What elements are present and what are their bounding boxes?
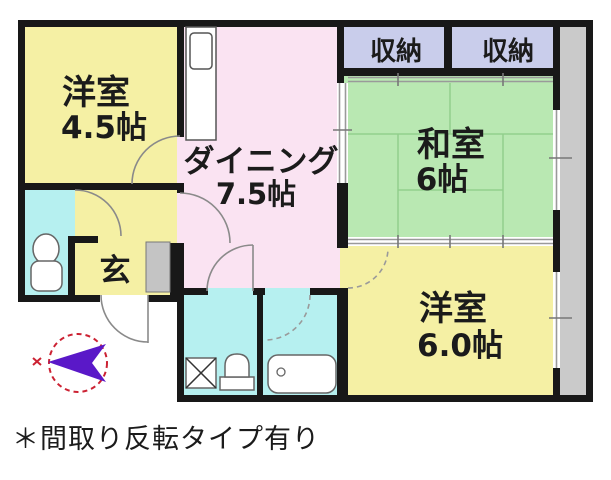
north-arrow-icon [33,334,107,392]
balcony-strip [556,24,590,395]
washing-machine-pan-icon [186,358,216,388]
label-storage-left: 収納 [370,36,422,67]
label-western-small-size: 4.5帖 [61,110,147,146]
floor-plan: 洋室 4.5帖 ダイニング 7.5帖 収納 収納 和室 6帖 洋室 6.0帖 玄… [0,0,611,480]
label-dining-name: ダイニング [184,144,339,180]
label-japanese-size: 6帖 [416,162,469,198]
bathtub-icon [268,355,336,393]
shoe-cabinet-icon [146,242,170,292]
label-western-large-size: 6.0帖 [417,328,503,364]
label-japanese-name: 和室 [417,125,485,165]
label-dining-size: 7.5帖 [216,177,296,211]
label-western-small-name: 洋室 [62,73,130,113]
toilet-icon [31,234,62,291]
floor-plan-drawing: 洋室 4.5帖 ダイニング 7.5帖 収納 収納 和室 6帖 洋室 6.0帖 玄… [0,0,611,480]
kitchen-counter-icon [186,27,216,140]
caption-note: ＊間取り反転タイプ有り [12,424,320,455]
label-storage-right: 収納 [482,36,534,67]
label-western-large-name: 洋室 [419,289,487,329]
label-entrance: 玄 [100,253,131,289]
front-door-opening [100,295,148,302]
front-door-swing [101,295,148,342]
